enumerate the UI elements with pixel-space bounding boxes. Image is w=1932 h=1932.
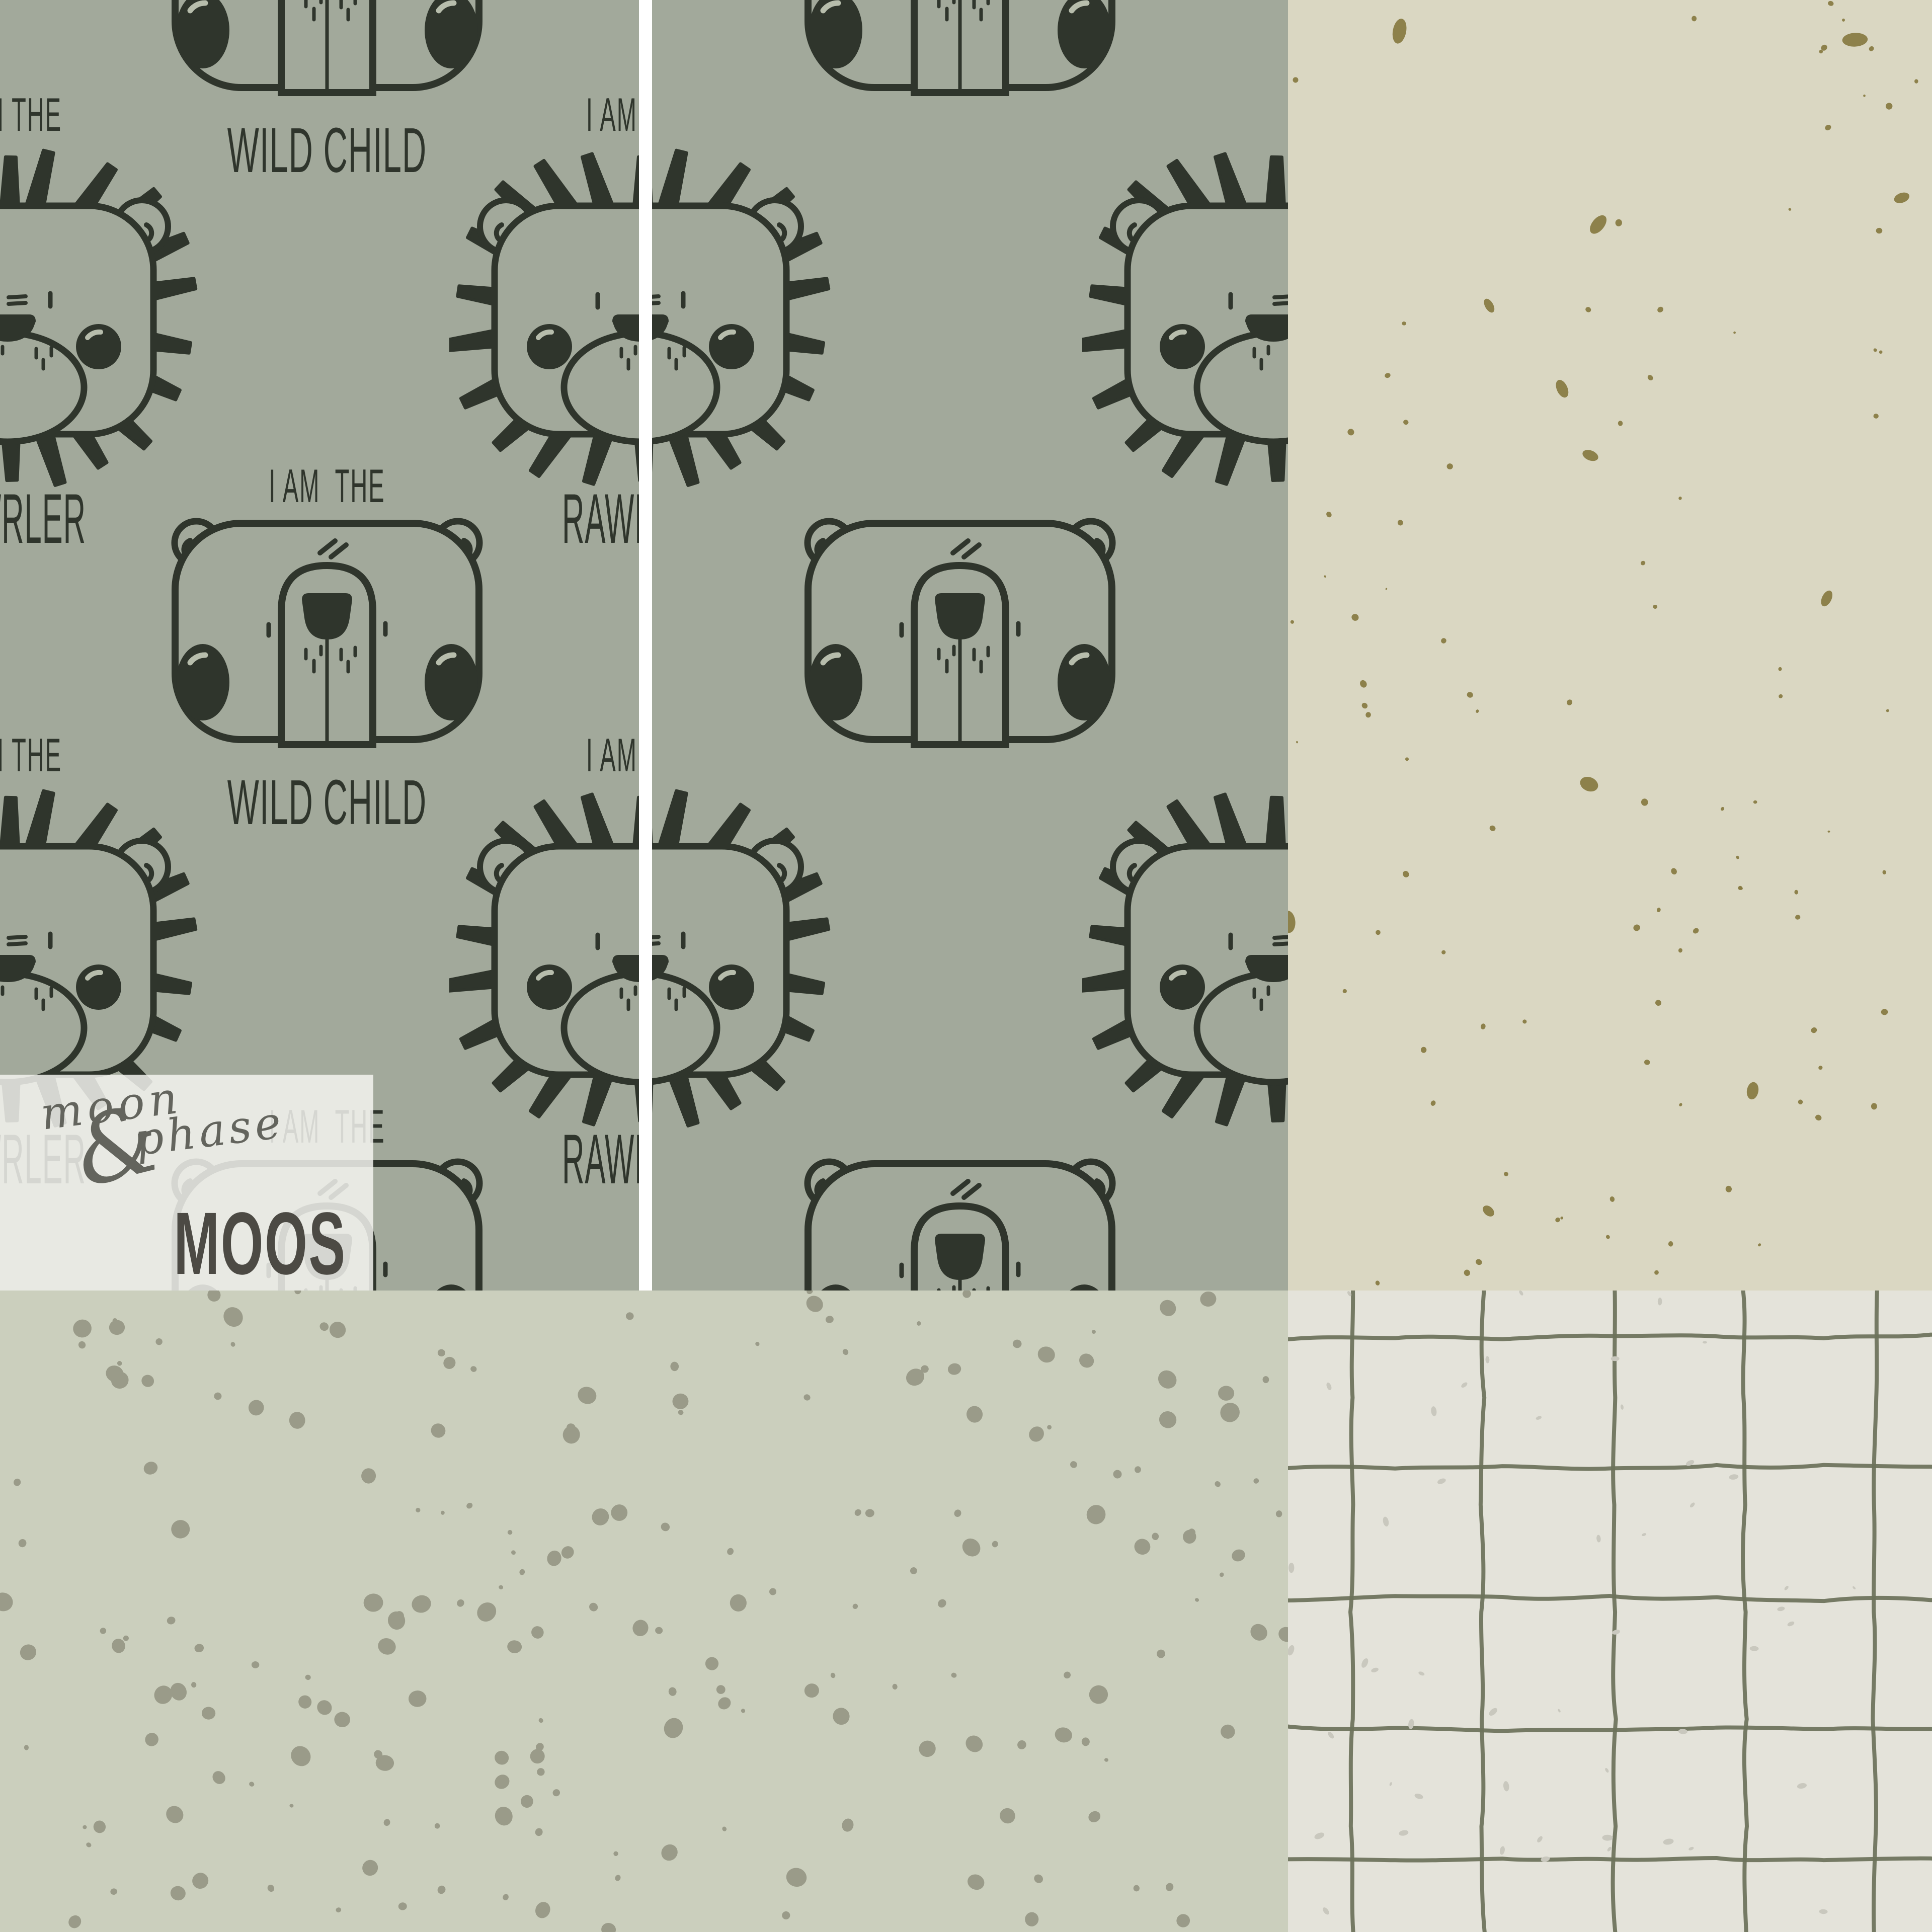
swatch-speckle bbox=[1288, 0, 1932, 1291]
caption-i-am-the: I AM THE bbox=[0, 732, 62, 779]
swatch-lion-bear-pattern: I AM THERAWRLERI AM THERAWRLERI AM THERA… bbox=[0, 0, 1288, 1291]
caption-i-am-the: I AM THE bbox=[269, 462, 385, 510]
caption-i-am-the: I AM THE bbox=[0, 91, 62, 138]
swatch-grid bbox=[1288, 1291, 1932, 1932]
caption-wild-child: WILD CHILD bbox=[227, 119, 427, 182]
lion-face-motif bbox=[1077, 791, 1288, 1126]
panel-seam-divider bbox=[639, 0, 652, 1291]
brand-label: moon & phase MOOS bbox=[0, 1075, 373, 1291]
swatch-dots bbox=[0, 1291, 1288, 1932]
caption-rawrler: RAWRLER bbox=[562, 1124, 639, 1194]
caption-rawrler: RAWRLER bbox=[0, 484, 86, 554]
bear-face-motif bbox=[808, 521, 1112, 745]
lion-face-motif bbox=[1077, 150, 1288, 486]
bear-face-motif bbox=[808, 1162, 1112, 1291]
dots-texture bbox=[0, 1291, 1288, 1932]
bear-face-motif bbox=[808, 0, 1112, 93]
speckle-texture bbox=[1288, 0, 1932, 1291]
collection-name: MOOS bbox=[174, 1199, 346, 1288]
caption-wild-child: WILD CHILD bbox=[227, 771, 427, 834]
caption-i-am-the: I AM THE bbox=[586, 91, 639, 138]
grid-texture bbox=[1288, 1291, 1932, 1932]
fabric-collection-preview: I AM THERAWRLERI AM THERAWRLERI AM THERA… bbox=[0, 0, 1932, 1932]
caption-rawrler: RAWRLER bbox=[562, 484, 639, 554]
caption-i-am-the: I AM THE bbox=[586, 732, 639, 779]
